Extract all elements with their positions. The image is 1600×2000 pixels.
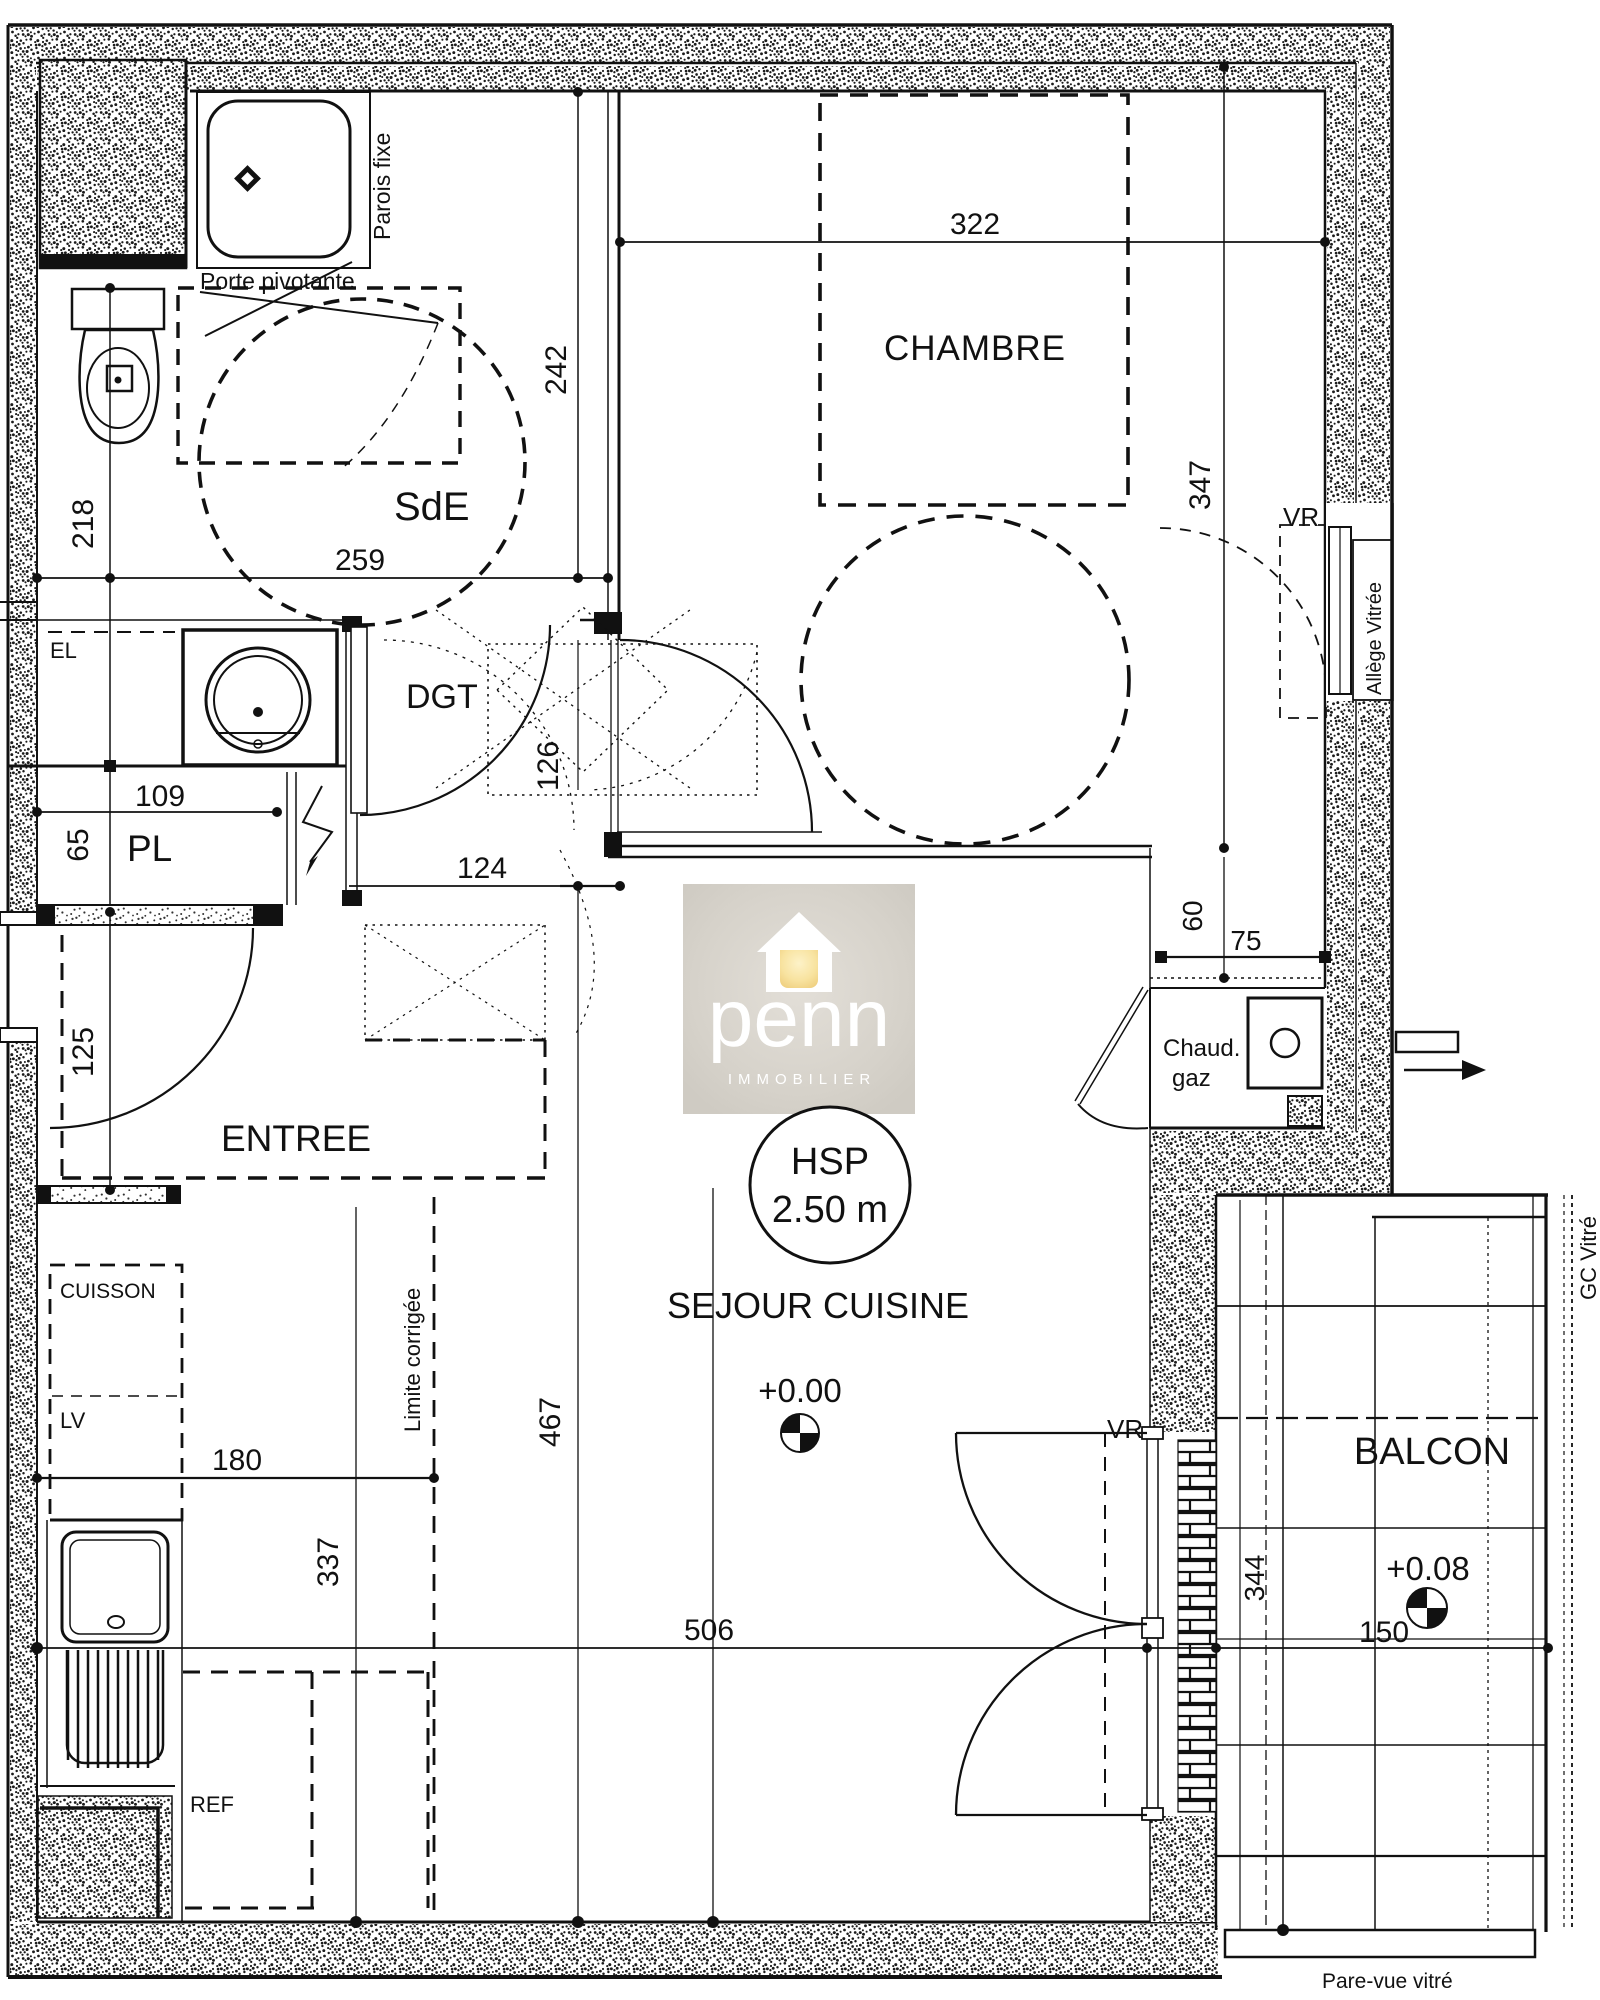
- svg-text:259: 259: [335, 544, 385, 577]
- svg-text:SEJOUR CUISINE: SEJOUR CUISINE: [667, 1285, 969, 1326]
- svg-text:109: 109: [135, 780, 185, 813]
- svg-text:DGT: DGT: [406, 678, 478, 716]
- svg-text:344: 344: [1239, 1555, 1270, 1602]
- svg-text:Parois fixe: Parois fixe: [369, 133, 395, 240]
- svg-text:322: 322: [950, 208, 1000, 241]
- svg-text:Pare-vue vitré: Pare-vue vitré: [1322, 1970, 1453, 1993]
- svg-text:347: 347: [1184, 460, 1217, 510]
- svg-text:2.50 m: 2.50 m: [772, 1189, 888, 1231]
- svg-text:REF: REF: [190, 1792, 234, 1817]
- svg-text:BALCON: BALCON: [1354, 1431, 1510, 1473]
- svg-text:gaz: gaz: [1172, 1065, 1211, 1092]
- svg-text:HSP: HSP: [791, 1141, 869, 1183]
- svg-text:126: 126: [532, 741, 565, 791]
- svg-text:VR: VR: [1283, 502, 1319, 532]
- svg-text:65: 65: [62, 828, 95, 861]
- svg-text:IMMOBILIER: IMMOBILIER: [728, 1071, 876, 1088]
- svg-text:180: 180: [212, 1444, 262, 1477]
- svg-text:Chaud.: Chaud.: [1163, 1035, 1240, 1062]
- svg-text:124: 124: [457, 852, 507, 885]
- svg-text:+0.08: +0.08: [1386, 1550, 1470, 1587]
- svg-text:GC Vitré: GC Vitré: [1576, 1216, 1600, 1300]
- svg-text:VR: VR: [1107, 1414, 1143, 1444]
- svg-text:242: 242: [540, 345, 573, 395]
- svg-text:467: 467: [534, 1397, 567, 1447]
- svg-text:150: 150: [1359, 1616, 1409, 1649]
- svg-text:LV: LV: [60, 1408, 86, 1433]
- svg-text:+0.00: +0.00: [758, 1372, 842, 1409]
- svg-text:Limite corrigée: Limite corrigée: [400, 1288, 425, 1432]
- svg-text:Allège Vitrée: Allège Vitrée: [1364, 582, 1386, 695]
- svg-text:SdE: SdE: [394, 485, 470, 529]
- svg-text:218: 218: [67, 499, 100, 549]
- svg-text:ENTREE: ENTREE: [221, 1118, 371, 1159]
- svg-text:75: 75: [1230, 925, 1261, 956]
- svg-text:EL: EL: [50, 638, 77, 663]
- svg-text:CUISSON: CUISSON: [60, 1280, 156, 1303]
- svg-text:PL: PL: [127, 828, 172, 869]
- svg-text:60: 60: [1177, 900, 1208, 931]
- svg-text:125: 125: [67, 1027, 100, 1077]
- svg-text:337: 337: [312, 1537, 345, 1587]
- svg-text:506: 506: [684, 1614, 734, 1647]
- svg-text:penn: penn: [708, 973, 890, 1064]
- svg-text:CHAMBRE: CHAMBRE: [884, 329, 1066, 368]
